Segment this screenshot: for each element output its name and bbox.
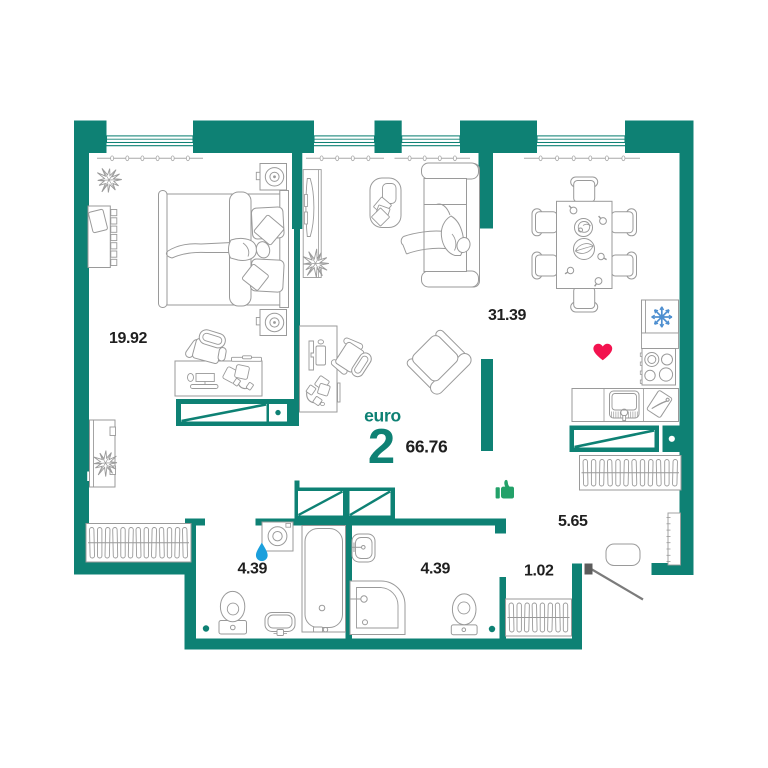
svg-text:31.39: 31.39 <box>488 307 527 324</box>
svg-text:4.39: 4.39 <box>238 561 268 578</box>
svg-text:1.02: 1.02 <box>524 563 554 580</box>
svg-text:4.39: 4.39 <box>421 561 451 578</box>
svg-text:5.65: 5.65 <box>558 513 588 530</box>
svg-text:66.76: 66.76 <box>406 437 448 457</box>
svg-text:2: 2 <box>368 420 395 474</box>
svg-text:19.92: 19.92 <box>109 330 148 347</box>
